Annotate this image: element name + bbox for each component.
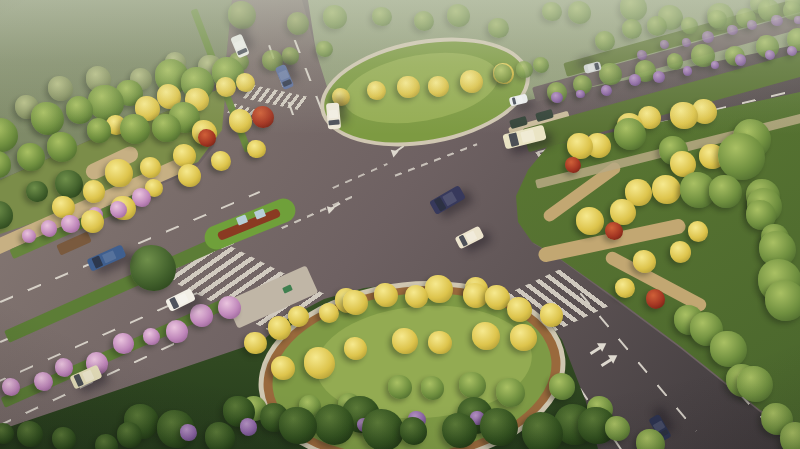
shrub-tree	[95, 434, 118, 449]
ginkgo-tree	[567, 133, 593, 159]
ginkgo-tree	[652, 175, 681, 204]
ginkgo-tree	[211, 151, 231, 171]
green-tree	[17, 143, 45, 171]
purple-tree	[601, 85, 612, 96]
intersection-rendering	[0, 0, 800, 449]
pink-tree	[41, 220, 58, 237]
pink-tree	[55, 358, 74, 377]
ginkgo-tree	[610, 199, 635, 224]
ginkgo-tree	[247, 140, 266, 159]
purple-tree	[735, 54, 747, 66]
green-tree	[494, 64, 513, 83]
ginkgo-tree	[392, 328, 418, 354]
pink-tree	[34, 372, 53, 391]
green-tree	[388, 375, 412, 399]
turn-guide-2	[395, 143, 478, 176]
purple-tree	[180, 424, 196, 440]
green-tree	[323, 5, 347, 29]
green-tree	[516, 61, 533, 78]
shrub-tree	[0, 423, 14, 444]
purple-tree	[747, 20, 757, 30]
purple-tree	[794, 16, 800, 25]
windshield	[91, 255, 102, 268]
ginkgo-tree	[507, 297, 532, 322]
pink-tree	[190, 304, 213, 327]
arrow-head	[325, 206, 335, 215]
green-tree	[681, 17, 698, 34]
turn-guide-3	[332, 163, 388, 189]
green-tree	[542, 2, 561, 21]
ginkgo-tree	[670, 241, 691, 262]
green-tree	[459, 372, 485, 398]
ginkgo-tree	[374, 283, 397, 306]
purple-tree	[653, 71, 665, 83]
green-tree	[709, 175, 743, 209]
blue-truck-north	[274, 64, 294, 90]
ginkgo-tree	[670, 102, 698, 130]
green-tree	[372, 7, 392, 27]
vehicle-roof	[587, 63, 594, 71]
red-tree	[198, 129, 216, 147]
purple-tree	[787, 46, 797, 56]
ginkgo-tree	[472, 322, 500, 350]
pink-tree	[61, 215, 79, 233]
pink-tree	[218, 296, 241, 319]
purple-tree	[682, 38, 691, 47]
darkgreen-tree	[0, 201, 13, 228]
ginkgo-tree	[463, 283, 488, 308]
ginkgo-tree	[271, 356, 295, 380]
pink-tree	[2, 378, 20, 396]
shrub-tree	[279, 407, 317, 445]
pink-tree	[110, 201, 127, 218]
red-tree	[605, 222, 623, 240]
green-tree	[120, 114, 150, 144]
shrub-tree	[362, 409, 404, 449]
ginkgo-tree	[229, 109, 253, 133]
ginkgo-tree	[688, 221, 709, 242]
pink-tree	[166, 320, 189, 343]
windshield	[594, 62, 599, 70]
ginkgo-tree	[428, 76, 449, 97]
ginkgo-tree	[510, 324, 537, 351]
green-tree	[47, 132, 77, 162]
green-tree	[414, 11, 434, 31]
green-tree	[667, 53, 684, 70]
ginkgo-tree	[460, 70, 483, 93]
darkgreen-tree	[130, 245, 176, 291]
green-tree	[31, 102, 64, 135]
pink-tree	[113, 333, 133, 353]
ginkgo-tree	[540, 303, 564, 327]
arrow-head	[608, 351, 620, 364]
vehicle-roof	[465, 230, 477, 243]
ginkgo-tree	[268, 316, 292, 340]
shrub-tree	[117, 422, 142, 447]
shrub-tree	[52, 427, 77, 449]
green-tree	[533, 57, 549, 73]
green-tree	[496, 378, 525, 407]
windshield	[281, 79, 291, 87]
green-tree	[287, 12, 309, 34]
ginkgo-tree	[81, 210, 104, 233]
purple-tree	[637, 50, 647, 60]
shrub-tree	[17, 421, 43, 447]
purple-tree	[683, 66, 692, 75]
windshield	[511, 97, 516, 105]
ginkgo-tree	[343, 290, 367, 314]
shrub-tree	[400, 417, 428, 445]
vehicle-roof	[328, 109, 339, 118]
vehicle-roof	[278, 70, 289, 80]
green-tree	[447, 4, 470, 27]
green-tree	[0, 151, 11, 177]
shrub-tree	[205, 422, 235, 449]
purple-tree	[771, 15, 782, 26]
red-tree	[565, 157, 581, 173]
arrow-head	[390, 150, 399, 158]
purple-tree	[240, 418, 257, 435]
purple-tree	[727, 25, 737, 35]
ginkgo-tree	[428, 331, 452, 355]
green-tree	[737, 366, 773, 402]
windshield	[508, 133, 519, 147]
ginkgo-tree	[633, 250, 656, 273]
ginkgo-tree	[140, 157, 161, 178]
green-tree	[622, 19, 642, 39]
green-tree	[152, 114, 180, 142]
ginkgo-tree	[425, 275, 453, 303]
green-tree	[647, 16, 667, 36]
green-tree	[710, 331, 747, 368]
purple-tree	[660, 40, 669, 49]
green-tree	[488, 18, 508, 38]
green-tree	[568, 1, 591, 24]
vehicle-roof	[519, 129, 535, 143]
arrow-head	[597, 339, 609, 352]
purple-tree	[702, 31, 714, 43]
purple-tree	[576, 90, 584, 98]
vehicle-roof	[516, 96, 523, 104]
cream-sedan-center	[454, 225, 484, 249]
green-tree	[708, 10, 726, 28]
green-tree	[605, 416, 630, 441]
ginkgo-tree	[178, 164, 201, 187]
ginkgo-tree	[236, 73, 255, 92]
ginkgo-tree	[244, 332, 266, 354]
ginkgo-tree	[304, 347, 336, 379]
ginkgo-tree	[288, 306, 309, 327]
green-tree	[620, 0, 647, 21]
blue-bus-west-stop	[86, 244, 126, 271]
green-tree	[66, 96, 93, 123]
red-tree	[252, 106, 274, 128]
shrub-tree	[314, 404, 354, 444]
red-tree	[646, 289, 665, 308]
ginkgo-tree	[405, 285, 428, 308]
green-tree	[765, 280, 800, 321]
white-car-north	[325, 102, 340, 129]
ginkgo-tree	[367, 81, 387, 101]
purple-tree	[711, 61, 719, 69]
ginkgo-tree	[83, 180, 105, 202]
ginkgo-tree	[105, 159, 133, 187]
green-tree	[316, 41, 332, 57]
green-tree	[421, 376, 444, 399]
olive-tree	[48, 76, 73, 101]
windshield	[328, 120, 339, 126]
pink-tree	[22, 229, 36, 243]
green-tree	[0, 118, 18, 152]
darkgreen-tree	[26, 181, 47, 202]
navy-minibus-center	[429, 185, 466, 215]
green-tree	[228, 1, 256, 29]
shrub-tree	[442, 413, 477, 448]
ginkgo-tree	[576, 207, 604, 235]
green-tree	[282, 47, 299, 64]
ginkgo-tree	[344, 337, 367, 360]
purple-tree	[629, 74, 641, 86]
green-tree	[87, 118, 112, 143]
ginkgo-tree	[397, 76, 420, 99]
green-tree	[549, 373, 575, 399]
darkgreen-tree	[55, 170, 83, 198]
ginkgo-tree	[216, 77, 236, 97]
green-tree	[599, 63, 621, 85]
pink-tree	[143, 328, 160, 345]
vehicle-roof	[101, 250, 116, 264]
ginkgo-tree	[615, 278, 635, 298]
vehicle-roof	[82, 369, 95, 383]
purple-tree	[551, 92, 563, 104]
